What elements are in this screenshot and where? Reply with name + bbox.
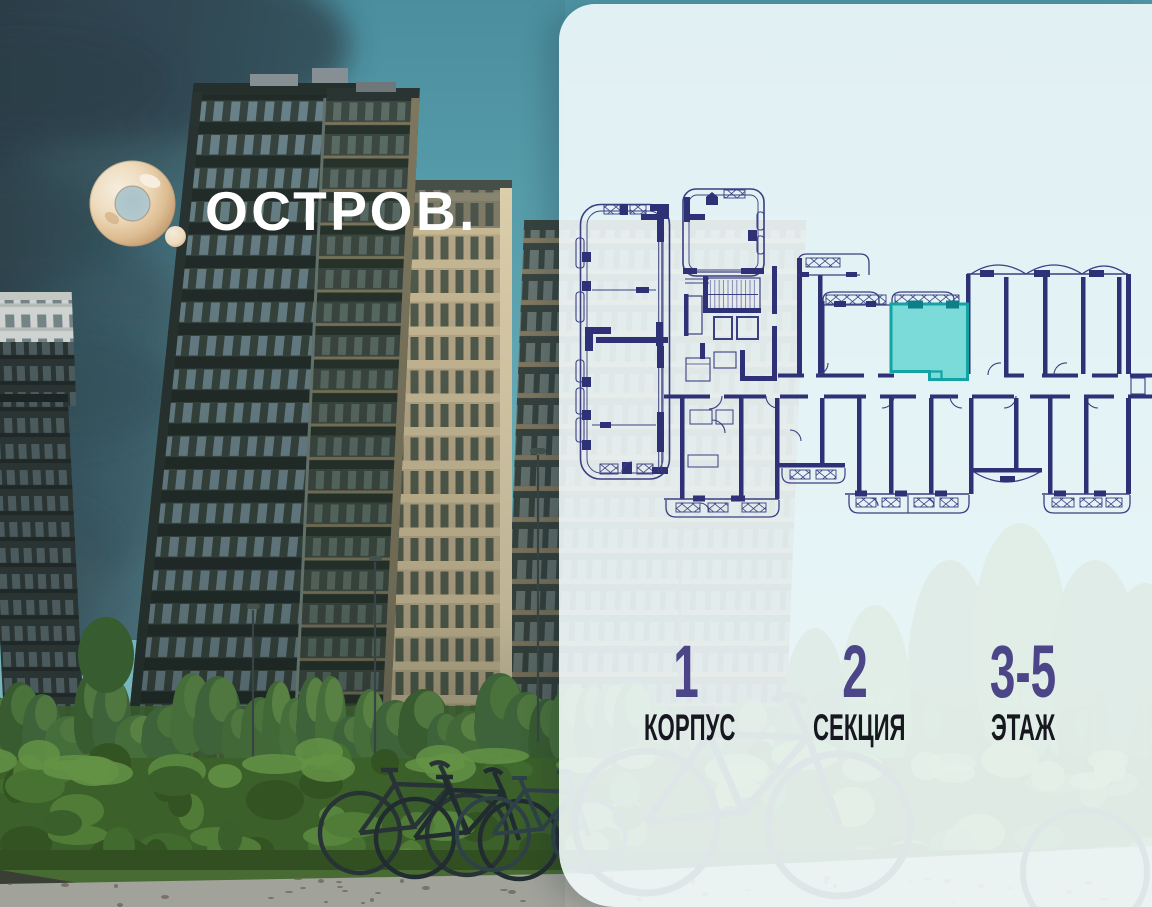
svg-text:ОСТРОВ.: ОСТРОВ.	[205, 180, 478, 242]
